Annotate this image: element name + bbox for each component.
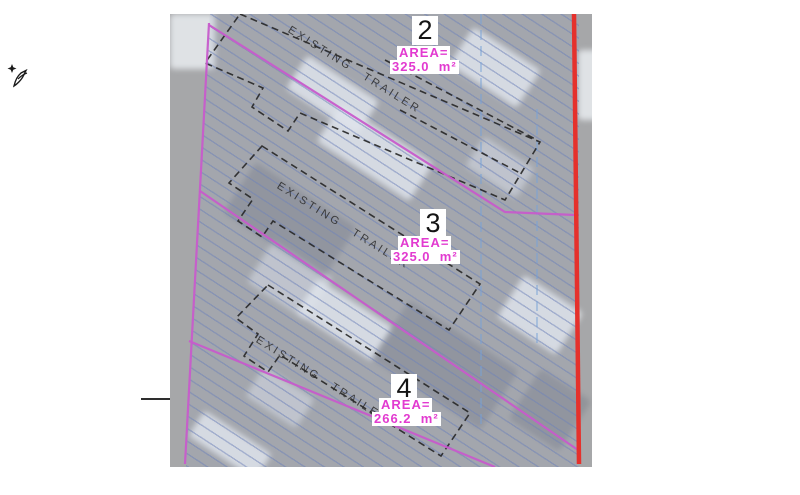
lot-divider-2-3: [209, 25, 575, 215]
page: EXISTING TRAILER EXISTING TRAILER EXISTI…: [0, 0, 800, 495]
lot-divider-4-5: [189, 341, 495, 467]
lot-number-3: 3: [420, 209, 446, 238]
lot4-area-value: 266.2 m²: [372, 412, 441, 426]
left-boundary-line: [185, 23, 209, 464]
pen-cursor-icon: [4, 60, 32, 92]
trailer-outline-lot2: [205, 14, 540, 200]
site-plan-canvas[interactable]: EXISTING TRAILER EXISTING TRAILER EXISTI…: [170, 14, 592, 467]
cursor-sparkle: [8, 64, 17, 73]
lot-number-2: 2: [412, 16, 438, 45]
lot2-area-label: AREA=: [397, 46, 450, 60]
cursor-pen-nib: [14, 71, 26, 87]
lot3-area-label: AREA=: [398, 236, 451, 250]
trailer-outline-lot4: [236, 285, 470, 456]
lot2-area-value: 325.0 m²: [390, 60, 459, 74]
lot4-area-label: AREA=: [379, 398, 432, 412]
right-boundary-red-line: [574, 14, 579, 464]
lot3-area-value: 325.0 m²: [391, 250, 460, 264]
